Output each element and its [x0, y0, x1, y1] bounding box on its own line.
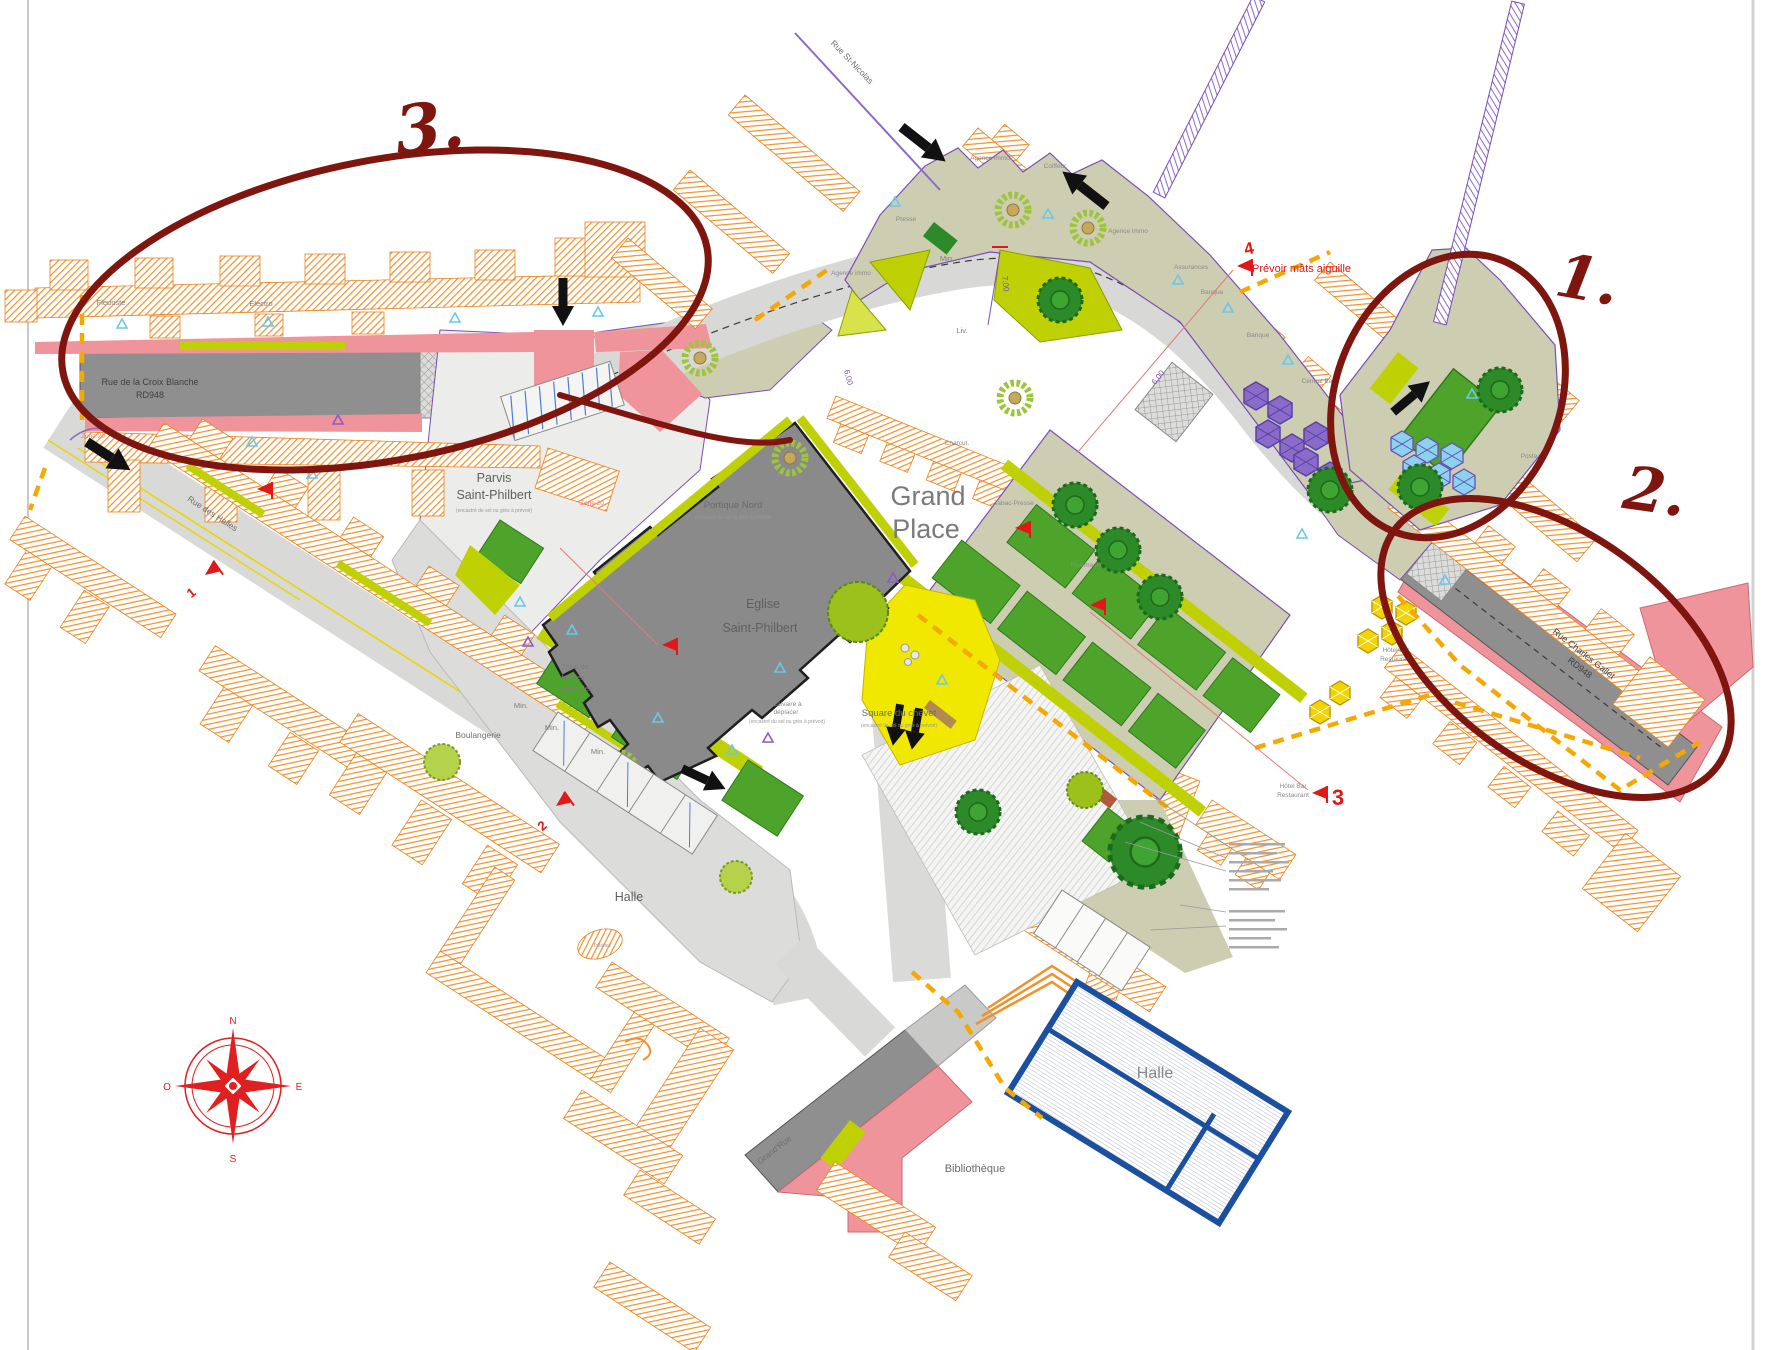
hand-number-1: 1.	[1551, 240, 1625, 320]
note-fouilles-2: fouilles	[561, 673, 585, 682]
shop-label-charcut: Charcut.	[945, 440, 970, 447]
flag-number-1: 1	[184, 584, 199, 600]
shop-label-banque-1: Banque	[1201, 289, 1224, 296]
note-zone20-2: Zone 20	[580, 500, 604, 507]
compass-south-label: S	[230, 1154, 237, 1165]
road-ref-rd948: RD948	[136, 390, 164, 400]
shop-label-central-bar: Central Bar	[1302, 378, 1336, 385]
compass-north-label: N	[229, 1016, 236, 1027]
place-label-parvis-1: Parvis	[477, 471, 512, 485]
shop-label-toilettes: Toilettes	[593, 943, 612, 949]
shop-label-min-1: Min.	[940, 254, 954, 263]
compass-rose: N E S O	[163, 1016, 303, 1165]
shop-label-assurances: Assurances	[1174, 264, 1209, 271]
plan-svg: N E S O Rue de la Croix Blanche RD948 Ru…	[0, 0, 1780, 1350]
hand-number-2: 2.	[1618, 453, 1691, 531]
shop-label-poste: Poste	[1521, 453, 1538, 460]
shop-label-min-2: Min.	[514, 701, 528, 710]
shop-label-boulangerie: Boulangerie	[455, 730, 501, 740]
halle-building-new	[1008, 982, 1288, 1223]
hand-number-3: 3.	[391, 85, 468, 170]
shop-label-min-3: Min.	[545, 723, 559, 732]
place-note-parvis: (encastré de sol ou grès à prévoir)	[456, 508, 532, 514]
flag-number-4: 4	[1242, 238, 1256, 259]
shop-label-electro: Electro	[249, 299, 272, 308]
place-label-square-chevet: Square du chevet	[862, 708, 937, 719]
place-label-halle-new: Halle	[1137, 1065, 1174, 1082]
shop-label-hotel-2a: Hôtel Bar	[1279, 783, 1307, 790]
shop-label-hotel-2b: Restaurant	[1277, 792, 1309, 799]
flag-number-3: 3	[1332, 785, 1344, 810]
note-calvaire-2: déplacer	[774, 709, 800, 716]
compass-east-label: E	[296, 1082, 303, 1093]
shop-label-banque-2: Banque	[1247, 332, 1270, 339]
shop-label-agence-immo-3: Agence immo	[831, 270, 871, 277]
shop-label-presse: Presse	[896, 216, 917, 223]
note-calvaire-1: Calvaire à	[772, 701, 802, 708]
place-note-portique: (encastré de sol ou grès à prévoir)	[695, 515, 771, 521]
dim-600a: 6,00	[842, 369, 855, 387]
place-label-portique-nord: Portique Nord	[704, 500, 763, 511]
compass-west-label: O	[163, 1082, 171, 1093]
shop-label-liv: Liv.	[956, 326, 967, 335]
shop-label-tabac-presse: Tabac-Presse	[994, 500, 1034, 507]
place-label-halle-old: Halle	[615, 890, 644, 904]
road-label-croix-blanche: Rue de la Croix Blanche	[101, 377, 198, 387]
note-calvaire-sub: (encastré du sol ou grès à prévoir)	[749, 719, 825, 725]
site-plan: N E S O Rue de la Croix Blanche RD948 Ru…	[0, 0, 1780, 1350]
shop-label-pharmacie: Pharmacie	[1070, 562, 1101, 569]
place-label-grand: Grand	[890, 481, 965, 511]
place-label-eglise-2: Saint-Philbert	[722, 621, 798, 635]
shop-label-agence-immo-2: Agence immo	[1108, 228, 1148, 235]
note-fouilles-3: possibles	[561, 684, 593, 693]
shop-label-coiffeur: Coiffeur	[1044, 163, 1067, 170]
place-label-bibliotheque: Bibliothèque	[945, 1163, 1006, 1175]
place-label-eglise-1: Eglise	[746, 597, 780, 611]
note-mats-aiguille: Prévoir mâts aiguille	[1252, 263, 1351, 275]
shop-label-fleuriste: Fleuriste	[97, 298, 126, 307]
shop-label-min-4: Min.	[591, 747, 605, 756]
place-label-parvis-2: Saint-Philbert	[456, 488, 532, 502]
place-label-place: Place	[892, 514, 960, 544]
shop-label-agence-immo-1: Agence immo	[970, 155, 1010, 162]
note-fouilles-1: Zone de	[561, 662, 589, 671]
note-zone20-1: Zone 20	[81, 433, 105, 440]
place-note-square: (encastré de sol ou grès à prévoir)	[861, 723, 937, 729]
